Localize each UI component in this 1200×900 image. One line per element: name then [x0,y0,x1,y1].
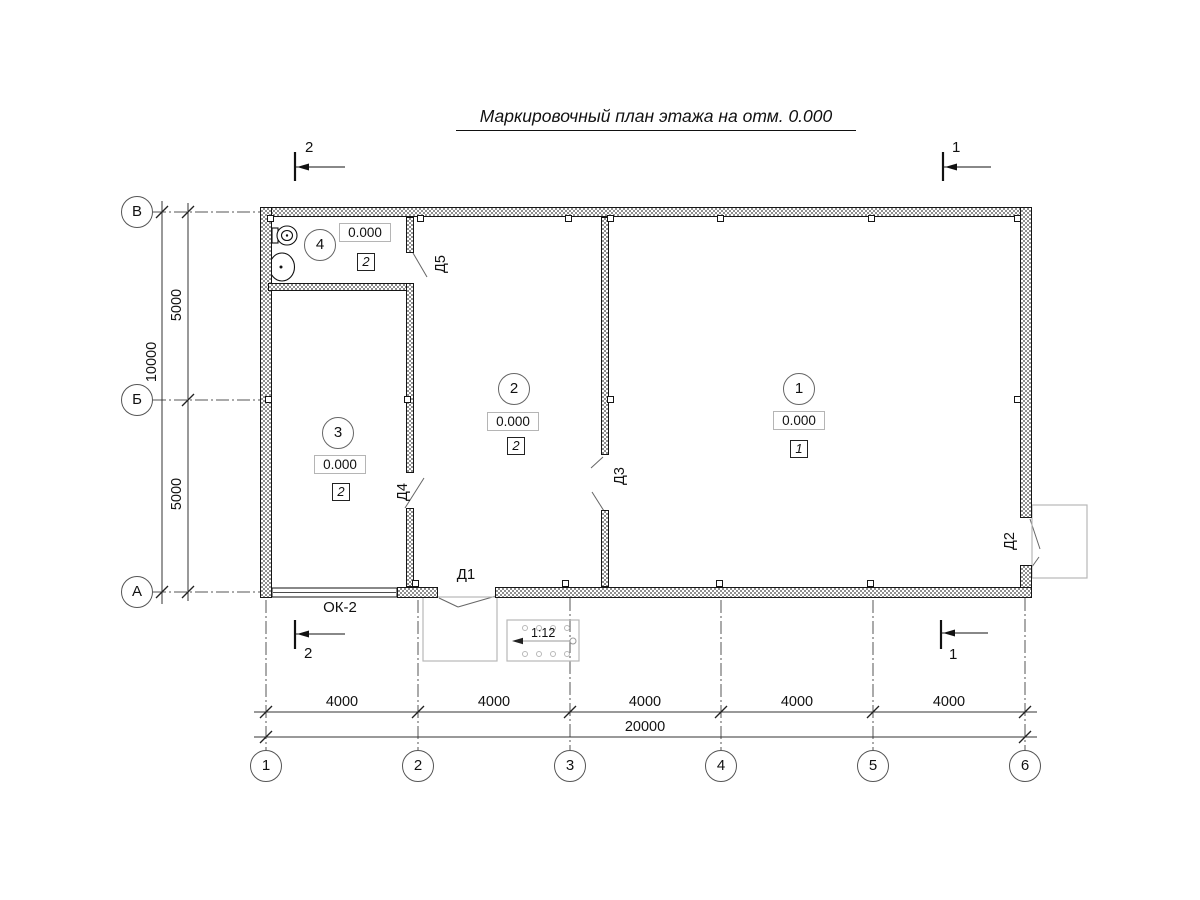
toilet-fixture [272,226,297,245]
row-axis-a: А [121,576,153,608]
axis-marker [265,396,272,403]
axis-marker [417,215,424,222]
axis-marker [404,396,411,403]
room-number-2: 2 [498,373,530,405]
room-number-1: 1 [783,373,815,405]
section-2-top-label: 2 [305,139,313,156]
axis-marker [607,215,614,222]
axis-marker [267,215,274,222]
room-1-finish: 1 [790,440,808,458]
wall-right-upper [1020,207,1032,518]
room-1-elevation: 0.000 [773,411,825,430]
dim-col-span-5: 4000 [919,694,979,710]
partition-v2-upper [601,217,609,455]
axis-marker [565,215,572,222]
sink-fixture [270,253,295,281]
door-label-d3: Д3 [612,446,628,506]
room-2-elevation: 0.000 [487,412,539,431]
partition-v2-lower [601,510,609,587]
ramp-slope-label: 1:12 [531,626,555,640]
door-label-d5: Д5 [433,234,449,294]
axis-marker [717,215,724,222]
col-axis-6: 6 [1009,750,1041,782]
room-4-finish: 2 [357,253,375,271]
dim-col-span-1: 4000 [312,694,372,710]
section-1-top-label: 1 [952,139,960,156]
axis-marker [716,580,723,587]
wall-bottom-pier [397,587,438,598]
col-axis-2: 2 [402,750,434,782]
axis-marker [867,580,874,587]
axis-marker [412,580,419,587]
porch-outlines [423,505,1087,661]
axis-marker [1014,396,1021,403]
room-3-finish: 2 [332,483,350,501]
wall-bottom-main [495,587,1032,598]
drawing-title: Маркировочный план этажа на отм. 0.000 [456,106,856,131]
axis-marker [868,215,875,222]
col-axis-1: 1 [250,750,282,782]
door-label-d1: Д1 [436,566,496,583]
partition-v1-middle [406,283,414,473]
dim-row-span-2: 5000 [169,464,185,524]
row-axis-v: В [121,196,153,228]
dim-row-total: 10000 [144,332,160,392]
col-axis-4: 4 [705,750,737,782]
dimension-lines [162,201,1037,737]
room-4-elevation: 0.000 [339,223,391,242]
col-axis-3: 3 [554,750,586,782]
window-symbol [272,588,397,597]
axis-marker [1014,215,1021,222]
wall-top [260,207,1032,217]
door-label-d4: Д4 [395,462,411,522]
section-2-bottom-label: 2 [304,645,312,662]
partition-bathroom-bottom [268,283,414,291]
dim-col-total: 20000 [615,719,675,735]
axis-marker [562,580,569,587]
grid-axis-lines [153,212,1025,750]
dim-col-span-2: 4000 [464,694,524,710]
dim-col-span-3: 4000 [615,694,675,710]
floor-plan-sheet: Маркировочный план этажа на отм. 0.000 [0,0,1200,900]
door-label-d2: Д2 [1002,511,1018,571]
room-number-4: 4 [304,229,336,261]
room-3-elevation: 0.000 [314,455,366,474]
section-marks [295,152,991,649]
section-1-bottom-label: 1 [949,646,957,663]
col-axis-5: 5 [857,750,889,782]
room-2-finish: 2 [507,437,525,455]
axis-marker [607,396,614,403]
room-number-3: 3 [322,417,354,449]
dim-col-span-4: 4000 [767,694,827,710]
window-label-ok2: ОК-2 [310,599,370,616]
dim-row-span-1: 5000 [169,275,185,335]
partition-v1-upper [406,217,414,253]
